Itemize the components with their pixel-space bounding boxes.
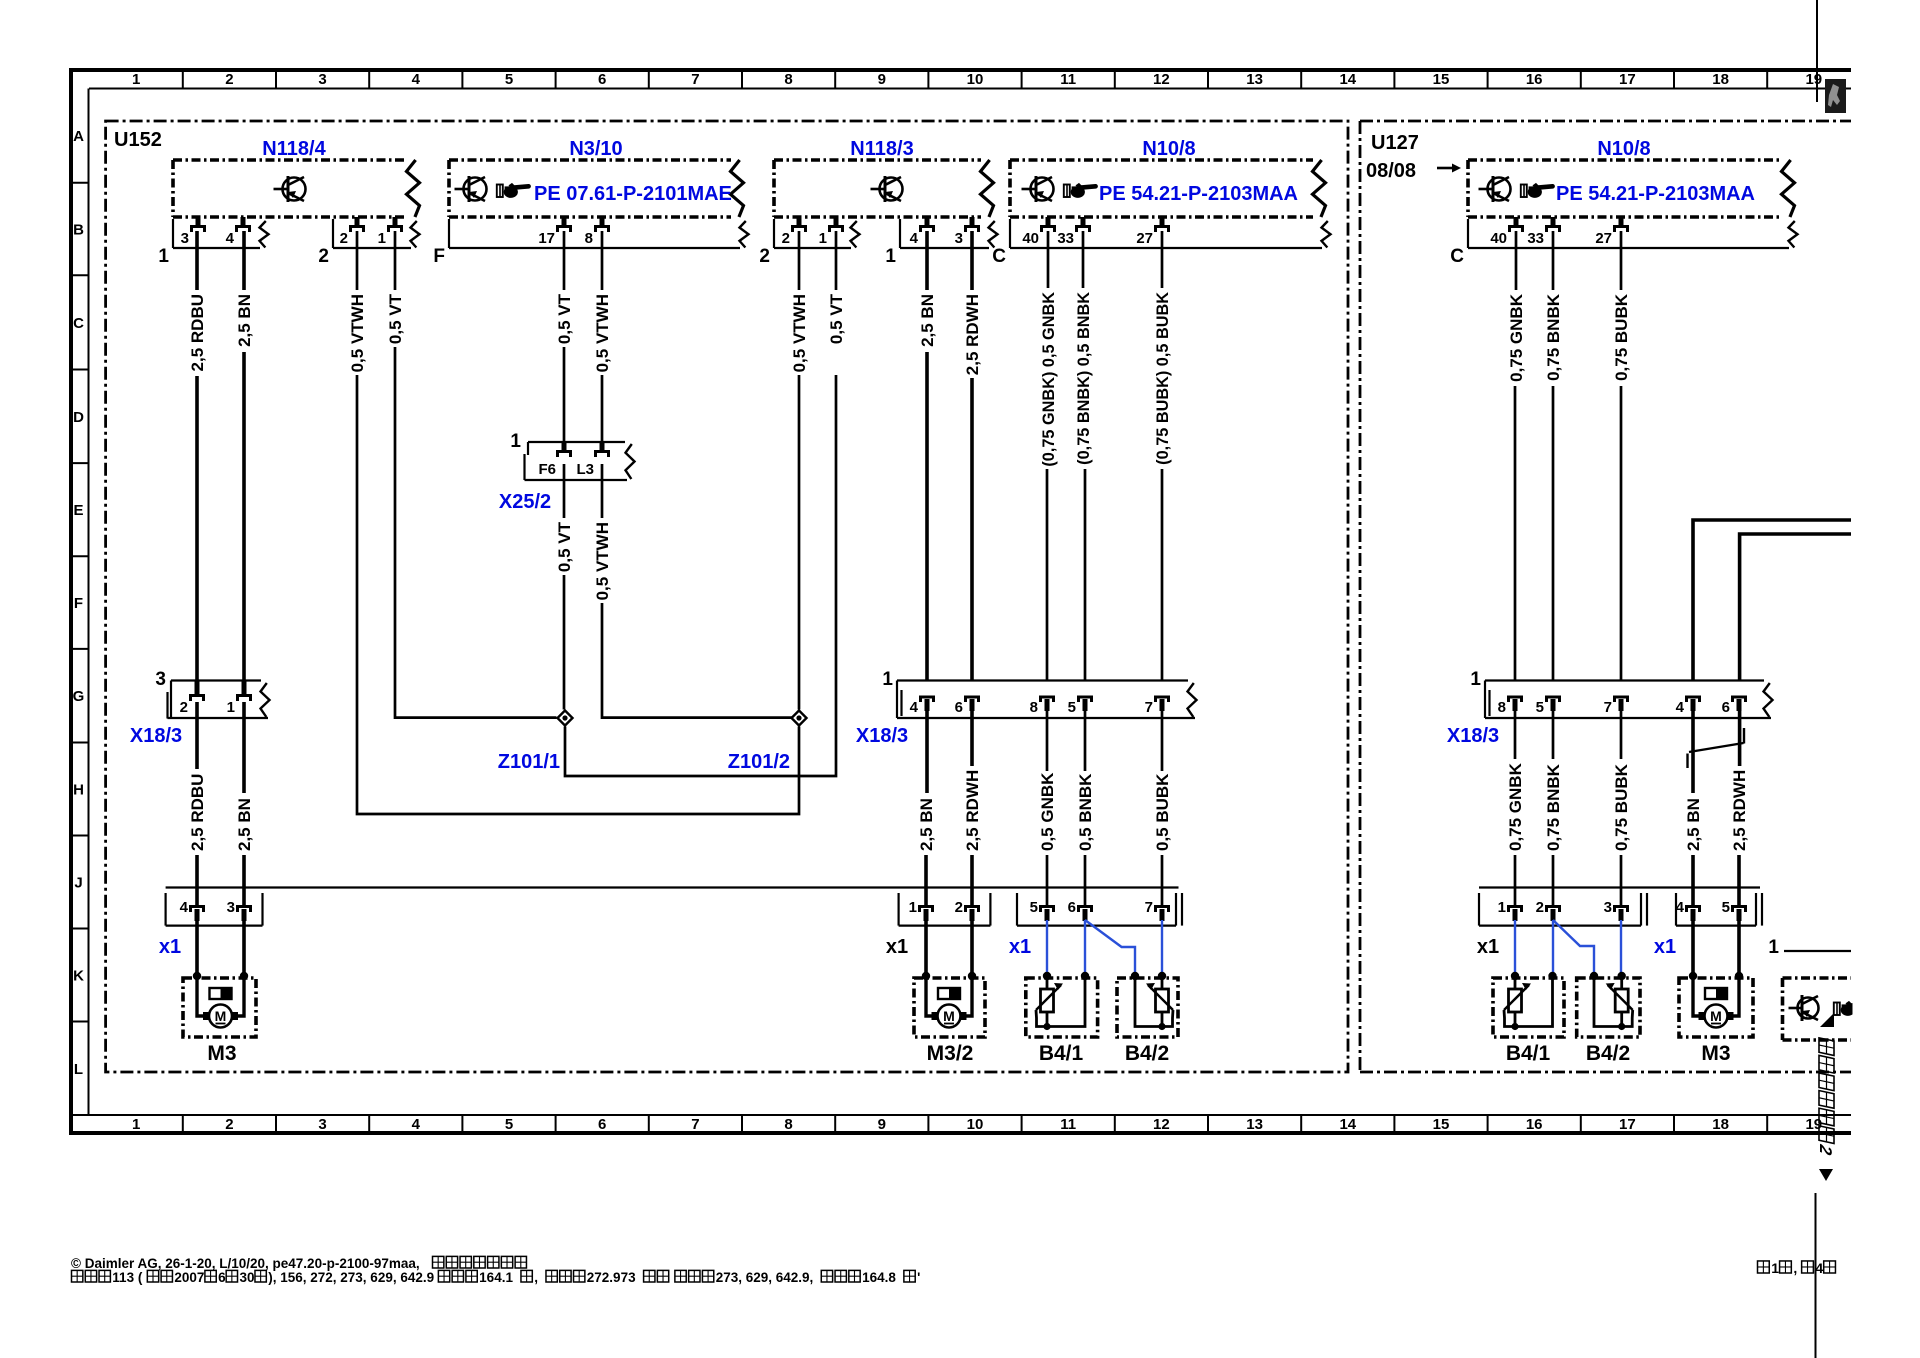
svg-text:K: K [73,968,84,985]
svg-text:2007: 2007 [174,1270,204,1285]
svg-text:1: 1 [909,899,917,916]
svg-text:N118/3: N118/3 [850,138,913,160]
svg-text:8: 8 [784,71,792,88]
svg-text:30: 30 [239,1270,254,1285]
svg-text:18: 18 [1712,71,1729,88]
svg-text:2,5 RDBU: 2,5 RDBU [188,294,207,371]
svg-text:X18/3: X18/3 [130,725,182,747]
svg-text:E: E [73,502,83,519]
svg-text:8: 8 [1498,699,1506,716]
svg-text:0,75 GNBK: 0,75 GNBK [1506,762,1525,851]
svg-text:0,5 VTWH: 0,5 VTWH [593,294,612,372]
svg-text:': ' [917,1270,920,1285]
svg-text:19: 19 [1805,71,1822,88]
svg-text:11: 11 [1060,71,1076,88]
svg-text:11: 11 [1060,1116,1076,1133]
svg-text:4: 4 [1676,899,1685,916]
svg-text:3: 3 [1604,899,1612,916]
svg-text:1: 1 [1768,937,1779,958]
svg-text:M3: M3 [207,1042,236,1065]
svg-text:40: 40 [1022,230,1039,247]
svg-text:16: 16 [1526,71,1543,88]
svg-text:6: 6 [955,699,963,716]
svg-text:7: 7 [1604,699,1612,716]
svg-text:14: 14 [1339,71,1356,88]
svg-text:0,5 VTWH: 0,5 VTWH [790,294,809,372]
svg-text:33: 33 [1527,230,1544,247]
svg-text:L3: L3 [576,461,594,478]
svg-text:17: 17 [1619,1116,1636,1133]
svg-text:x1: x1 [1654,936,1676,958]
svg-text:15: 15 [1433,71,1450,88]
svg-text:4: 4 [910,699,919,716]
svg-text:J: J [74,875,82,892]
svg-text:3: 3 [955,230,963,247]
svg-text:G: G [73,688,85,705]
svg-text:1: 1 [132,1116,140,1133]
svg-text:B4/1: B4/1 [1506,1042,1551,1065]
svg-text:PE 54.21-P-2103MAA: PE 54.21-P-2103MAA [1099,183,1298,205]
svg-text:8: 8 [1030,699,1038,716]
svg-text:2,5 RDWH: 2,5 RDWH [963,770,982,851]
svg-text:6: 6 [1068,899,1076,916]
svg-text:0,5 GNBK: 0,5 GNBK [1038,772,1057,851]
svg-text:18: 18 [1712,1116,1729,1133]
svg-text:1: 1 [885,246,896,267]
svg-text:5: 5 [505,71,513,88]
svg-text:1: 1 [819,230,827,247]
svg-text:1: 1 [158,246,169,267]
svg-text:4: 4 [412,1116,421,1133]
svg-text:15: 15 [1433,1116,1450,1133]
svg-text:5: 5 [1030,899,1038,916]
svg-text:8: 8 [585,230,593,247]
svg-text:0,5 BUBK: 0,5 BUBK [1153,773,1172,851]
svg-text:0,75 BNBK: 0,75 BNBK [1544,293,1563,381]
svg-text:1: 1 [1498,899,1506,916]
svg-text:7: 7 [691,1116,699,1133]
svg-text:164.8: 164.8 [862,1270,896,1285]
svg-text:2: 2 [225,71,233,88]
svg-text:0,5 VTWH: 0,5 VTWH [593,522,612,600]
svg-text:B4/2: B4/2 [1125,1042,1169,1065]
svg-text:M: M [943,1008,955,1024]
svg-text:27: 27 [1136,230,1153,247]
svg-text:1: 1 [378,230,386,247]
svg-text:3: 3 [318,71,326,88]
svg-text:x1: x1 [159,936,181,958]
svg-text:© Daimler AG, 26-1-20, L/10/: © Daimler AG, 26-1-20, L/10/20, pe47.20-… [71,1256,420,1271]
svg-text:X18/3: X18/3 [1447,725,1499,747]
svg-text:5: 5 [1068,699,1076,716]
svg-text:4: 4 [1676,699,1685,716]
svg-text:6: 6 [598,1116,606,1133]
svg-text:0,5 VT: 0,5 VT [386,293,405,344]
svg-text:2: 2 [1536,899,1544,916]
svg-text:27: 27 [1595,230,1612,247]
svg-text:N3/10: N3/10 [569,138,622,160]
svg-text:2,5 RDWH: 2,5 RDWH [963,294,982,375]
svg-text:M3: M3 [1701,1042,1730,1065]
svg-text:13: 13 [1246,1116,1263,1133]
svg-text:B4/1: B4/1 [1039,1042,1084,1065]
svg-text:Z101/1: Z101/1 [498,751,560,773]
svg-text:0,75 BNBK: 0,75 BNBK [1544,763,1563,851]
svg-text:0,5 BNBK: 0,5 BNBK [1076,773,1095,851]
svg-text:6: 6 [218,1270,226,1285]
svg-text:7: 7 [1145,899,1153,916]
svg-text:H: H [73,782,84,799]
svg-text:PE 54.21-P-2103MAA: PE 54.21-P-2103MAA [1556,183,1755,205]
svg-text:B4/2: B4/2 [1586,1042,1630,1065]
svg-text:9: 9 [878,1116,886,1133]
svg-text:U127: U127 [1371,132,1419,154]
svg-text:113 (: 113 ( [112,1270,143,1285]
svg-text:,: , [534,1270,538,1285]
svg-text:8: 8 [784,1116,792,1133]
svg-text:3: 3 [318,1116,326,1133]
svg-text:5: 5 [505,1116,513,1133]
svg-text:F6: F6 [538,461,556,478]
svg-text:4: 4 [412,71,421,88]
svg-text:x1: x1 [1009,936,1031,958]
svg-text:1: 1 [227,699,235,716]
svg-text:Z101/2: Z101/2 [728,751,790,773]
svg-text:0,5 VT: 0,5 VT [827,293,846,344]
svg-text:2: 2 [225,1116,233,1133]
svg-text:2: 2 [180,699,188,716]
svg-text:4: 4 [180,899,189,916]
svg-text:0,75 BUBK: 0,75 BUBK [1612,763,1631,851]
svg-text:10: 10 [967,1116,984,1133]
svg-text:7: 7 [691,71,699,88]
svg-text:13: 13 [1246,71,1263,88]
svg-text:4: 4 [910,230,919,247]
svg-text:1: 1 [1771,1260,1779,1276]
svg-text:0,5 VT: 0,5 VT [555,293,574,344]
svg-text:14: 14 [1339,1116,1356,1133]
svg-text:), 156, 272, 273, 629, 642.9: ), 156, 272, 273, 629, 642.9 [268,1270,434,1285]
svg-text:(0,75 BUBK) 0,5 BUBK: (0,75 BUBK) 0,5 BUBK [1154,292,1172,465]
svg-text:B: B [73,222,84,239]
svg-text:2: 2 [340,230,348,247]
svg-text:33: 33 [1057,230,1074,247]
svg-text:6: 6 [1722,699,1730,716]
svg-text:X18/3: X18/3 [856,725,908,747]
svg-text:1: 1 [882,669,893,690]
svg-text:2,5 BN: 2,5 BN [235,294,254,347]
svg-text:4: 4 [226,230,235,247]
svg-text:0,75 GNBK: 0,75 GNBK [1507,293,1526,382]
svg-text:C: C [73,315,84,332]
svg-text:2,5 BN: 2,5 BN [918,294,937,347]
svg-text:273, 629, 642.9,: 273, 629, 642.9, [716,1270,814,1285]
svg-text:0,5 VT: 0,5 VT [555,521,574,572]
svg-text:1: 1 [1470,669,1481,690]
svg-text:N10/8: N10/8 [1142,138,1195,160]
svg-text:L: L [74,1061,83,1078]
svg-text:2,5 BN: 2,5 BN [235,798,254,851]
svg-text:M3/2: M3/2 [927,1042,974,1065]
svg-text:16: 16 [1526,1116,1543,1133]
svg-text:1: 1 [510,431,521,452]
svg-text:U152: U152 [114,129,162,151]
svg-text:2: 2 [782,230,790,247]
svg-text:(0,75 BNBK) 0,5 BNBK: (0,75 BNBK) 0,5 BNBK [1075,292,1093,465]
svg-text:(0,75 GNBK) 0,5 GNBK: (0,75 GNBK) 0,5 GNBK [1040,292,1058,467]
svg-text:2,5 RDWH: 2,5 RDWH [1730,770,1749,851]
svg-text:2: 2 [318,246,329,267]
svg-text:272.973: 272.973 [587,1270,636,1285]
svg-text:N118/4: N118/4 [262,138,326,160]
svg-text:0,75 BUBK: 0,75 BUBK [1612,293,1631,381]
svg-text:12: 12 [1153,1116,1170,1133]
svg-text:5: 5 [1722,899,1730,916]
svg-text:PE 07.61-P-2101MAE: PE 07.61-P-2101MAE [534,183,732,205]
svg-text:,: , [1793,1260,1797,1276]
svg-text:F: F [74,595,83,612]
svg-text:40: 40 [1490,230,1507,247]
svg-text:X25/2: X25/2 [499,491,551,513]
svg-text:0,5 VTWH: 0,5 VTWH [348,294,367,372]
svg-text:A: A [73,128,84,145]
svg-text:2: 2 [955,899,963,916]
svg-text:3: 3 [181,230,189,247]
svg-text:3: 3 [227,899,235,916]
svg-text:M: M [1710,1008,1722,1024]
svg-text:2,5 BN: 2,5 BN [917,798,936,851]
svg-text:17: 17 [538,230,555,247]
svg-text:D: D [73,409,84,426]
svg-text:x1: x1 [1477,936,1499,958]
svg-text:5: 5 [1536,699,1544,716]
svg-text:164.1: 164.1 [479,1270,513,1285]
svg-text:3: 3 [155,669,166,690]
svg-text:9: 9 [878,71,886,88]
svg-text:2,5 RDBU: 2,5 RDBU [188,774,207,851]
svg-text:2: 2 [759,246,770,267]
svg-text:F: F [433,246,445,267]
svg-text:x1: x1 [886,936,908,958]
svg-text:7: 7 [1145,699,1153,716]
svg-text:17: 17 [1619,71,1636,88]
svg-text:12: 12 [1153,71,1170,88]
svg-text:4: 4 [1815,1260,1823,1276]
svg-text:C: C [992,246,1006,267]
svg-text:6: 6 [598,71,606,88]
svg-text:C: C [1450,246,1464,267]
svg-text:N10/8: N10/8 [1597,138,1650,160]
svg-text:08/08: 08/08 [1366,160,1416,182]
svg-text:10: 10 [967,71,984,88]
svg-text:M: M [215,1008,227,1024]
svg-text:2,5 BN: 2,5 BN [1684,798,1703,851]
svg-text:1: 1 [132,71,140,88]
